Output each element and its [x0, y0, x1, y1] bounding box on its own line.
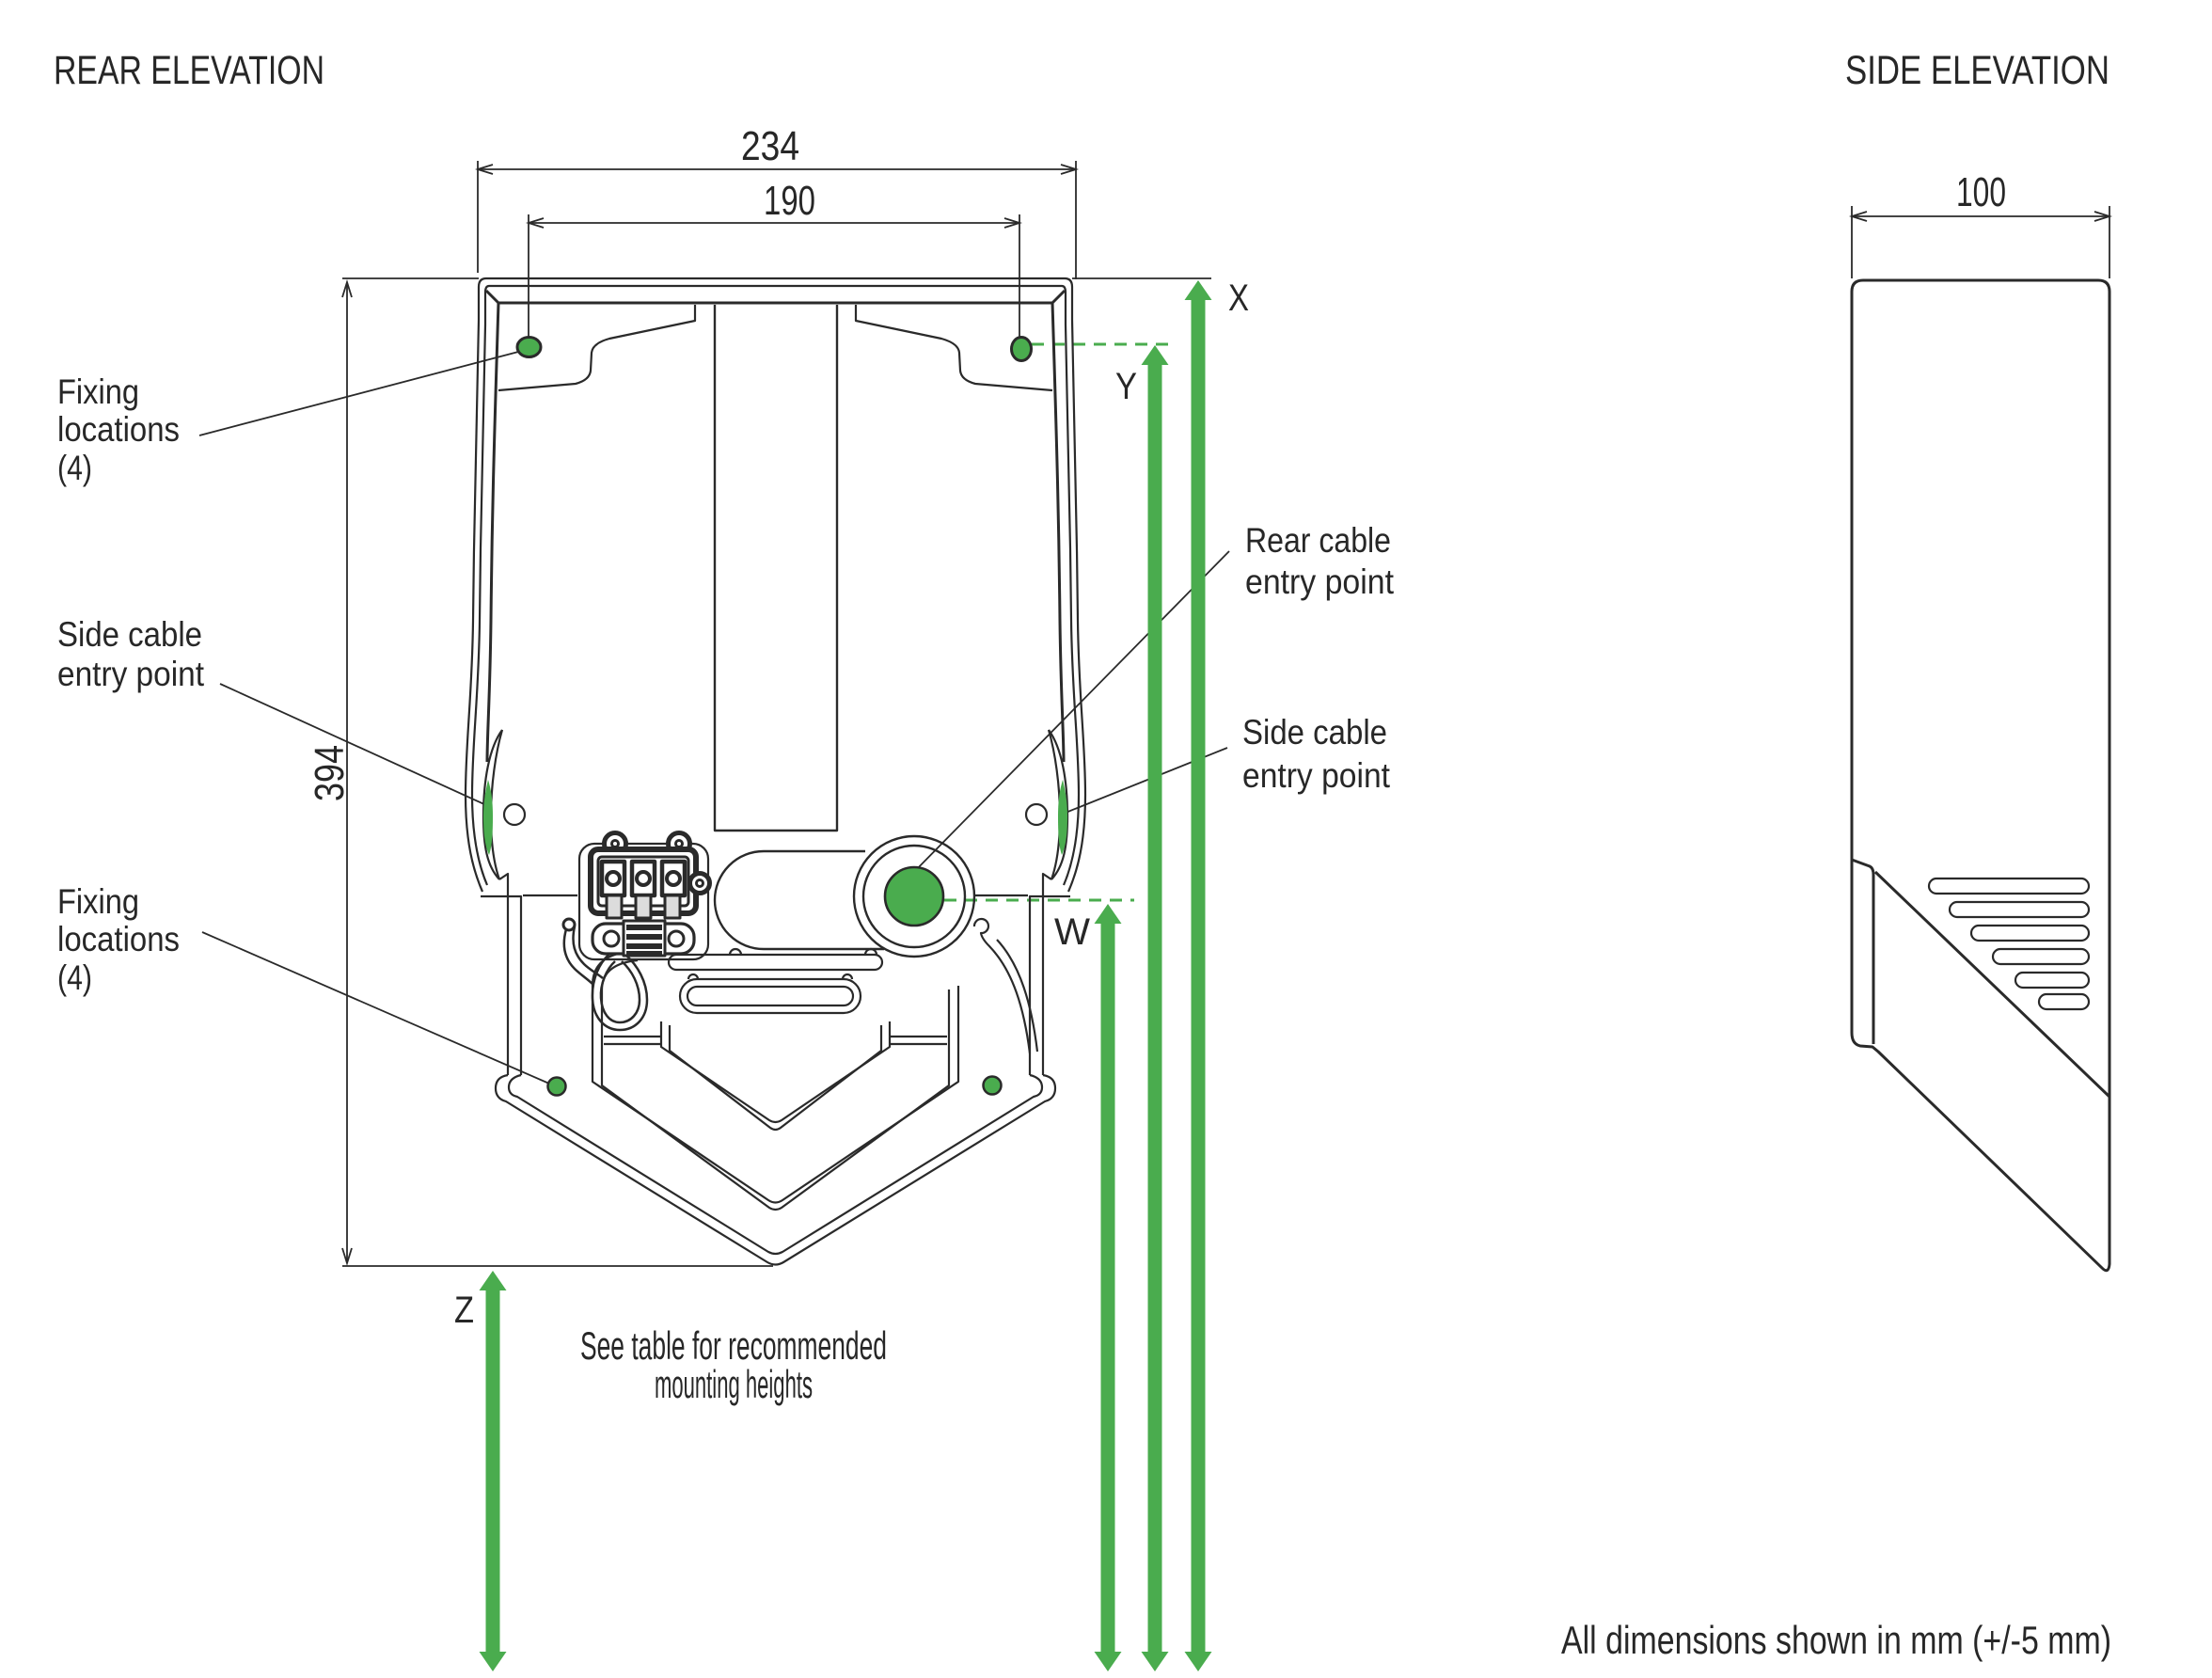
svg-text:Fixing: Fixing [57, 372, 139, 411]
svg-text:Fixing: Fixing [57, 882, 139, 921]
svg-text:Side cable: Side cable [1242, 713, 1387, 752]
svg-text:W: W [1054, 911, 1090, 953]
svg-text:100: 100 [1956, 169, 2006, 215]
svg-text:entry point: entry point [1245, 562, 1395, 601]
svg-text:394: 394 [307, 745, 353, 801]
svg-text:(4): (4) [57, 449, 92, 487]
svg-text:See table for recommended: See table for recommended [580, 1323, 887, 1368]
svg-text:All dimensions shown in mm (+/: All dimensions shown in mm (+/-5 mm) [1561, 1618, 2111, 1662]
svg-text:Rear cable: Rear cable [1245, 521, 1391, 560]
svg-text:Z: Z [454, 1290, 474, 1331]
svg-text:locations: locations [57, 410, 180, 449]
svg-text:entry point: entry point [57, 655, 205, 693]
svg-text:X: X [1228, 277, 1249, 319]
svg-text:190: 190 [764, 178, 815, 224]
svg-text:Side cable: Side cable [57, 615, 202, 654]
svg-text:mounting heights: mounting heights [655, 1362, 813, 1406]
svg-text:(4): (4) [57, 958, 92, 997]
svg-text:Y: Y [1115, 366, 1137, 407]
svg-text:REAR ELEVATION: REAR ELEVATION [54, 48, 324, 93]
svg-text:entry point: entry point [1242, 756, 1391, 795]
svg-text:234: 234 [741, 123, 799, 169]
svg-text:SIDE ELEVATION: SIDE ELEVATION [1845, 48, 2109, 93]
svg-text:locations: locations [57, 920, 180, 958]
